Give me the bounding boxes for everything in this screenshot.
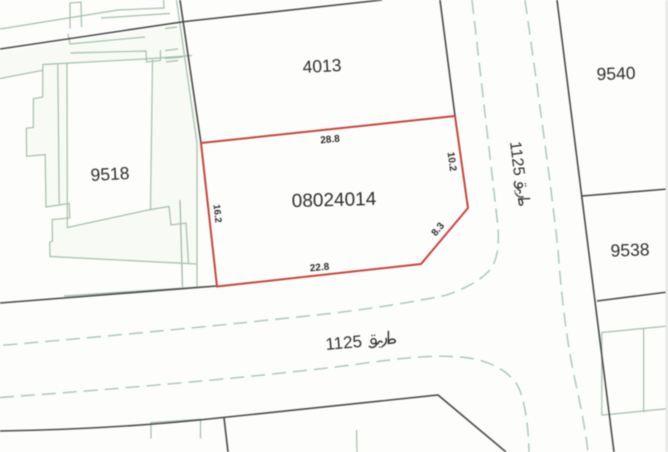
svg-text:28.8: 28.8 — [320, 134, 341, 147]
svg-text:16.2: 16.2 — [211, 204, 224, 224]
svg-text:4013: 4013 — [302, 55, 342, 77]
svg-text:08024014: 08024014 — [292, 189, 377, 212]
svg-text:9538: 9538 — [610, 239, 650, 260]
svg-text:9540: 9540 — [596, 63, 636, 84]
svg-text:9518: 9518 — [90, 163, 130, 185]
svg-text:1125: 1125 — [325, 332, 363, 354]
svg-text:22.8: 22.8 — [309, 262, 330, 275]
